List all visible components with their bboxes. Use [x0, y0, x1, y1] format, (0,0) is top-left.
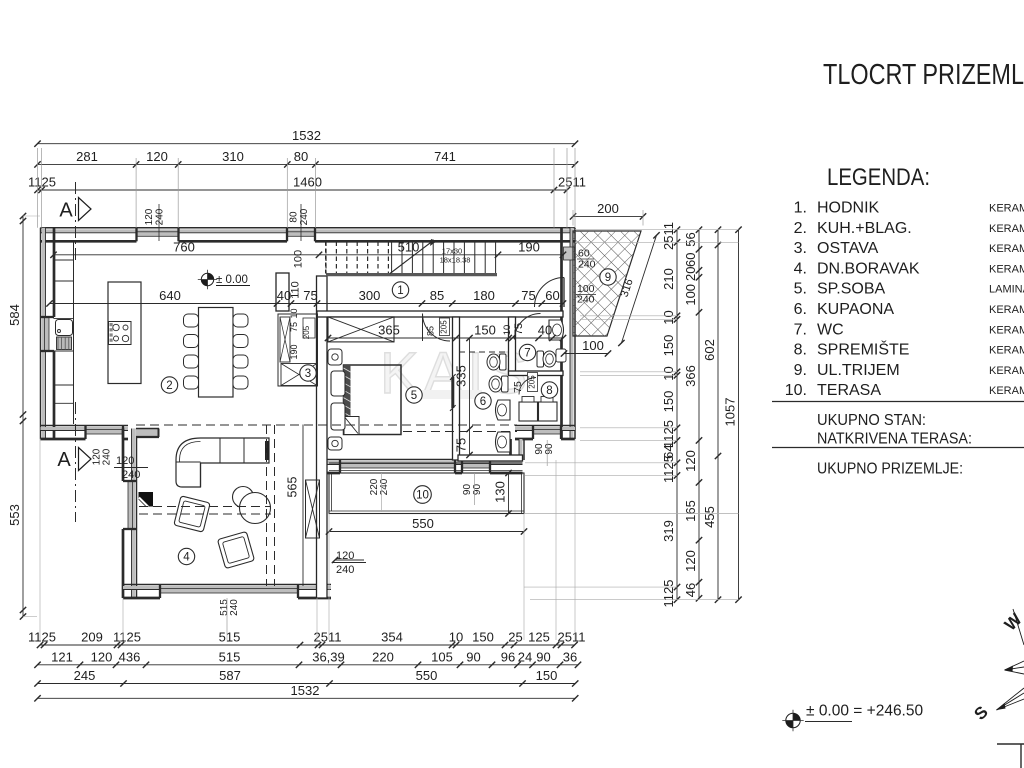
svg-text:354: 354 [381, 630, 403, 645]
svg-text:220: 220 [372, 649, 394, 664]
svg-text:310: 310 [222, 149, 244, 164]
svg-text:25: 25 [508, 630, 522, 645]
svg-text:KERAMI: KERAMI [989, 263, 1024, 275]
svg-text:1460: 1460 [293, 175, 322, 190]
svg-text:587: 587 [219, 668, 241, 683]
svg-text:205: 205 [528, 375, 537, 389]
svg-text:240: 240 [122, 469, 140, 481]
svg-text:17x30: 17x30 [442, 247, 462, 256]
svg-text:200: 200 [597, 201, 619, 216]
svg-text:105: 105 [431, 649, 453, 664]
svg-text:741: 741 [434, 149, 456, 164]
svg-text:550: 550 [412, 516, 434, 531]
svg-text:240: 240 [379, 478, 390, 495]
svg-text:515: 515 [219, 649, 241, 664]
svg-text:515: 515 [219, 630, 241, 645]
svg-text:46: 46 [683, 583, 698, 597]
svg-text:KERAMI: KERAMI [989, 385, 1024, 397]
svg-text:1125: 1125 [113, 630, 141, 645]
svg-text:281: 281 [76, 149, 98, 164]
svg-text:602: 602 [702, 339, 717, 361]
svg-text:100: 100 [683, 284, 698, 306]
svg-text:240: 240 [578, 259, 596, 271]
svg-text:150: 150 [472, 630, 494, 645]
svg-text:75: 75 [454, 438, 469, 452]
svg-text:240: 240 [229, 599, 240, 616]
svg-text:365: 365 [378, 323, 400, 338]
svg-text:1.: 1. [794, 200, 807, 217]
svg-text:300: 300 [359, 288, 381, 303]
svg-text:UKUPNO PRIZEMLJE:: UKUPNO PRIZEMLJE: [817, 461, 963, 478]
svg-text:1125: 1125 [28, 175, 56, 190]
svg-text:240: 240 [299, 208, 310, 225]
svg-text:190: 190 [518, 239, 540, 254]
svg-text:1125: 1125 [28, 630, 56, 645]
svg-text:240: 240 [102, 448, 113, 465]
svg-text:75: 75 [512, 381, 524, 393]
svg-text:WC: WC [817, 321, 844, 338]
svg-text:125: 125 [528, 630, 550, 645]
svg-text:85: 85 [430, 288, 444, 303]
svg-text:± 0.00: ± 0.00 [216, 274, 248, 286]
svg-text:1125: 1125 [661, 580, 676, 608]
svg-text:436: 436 [119, 649, 141, 664]
svg-text:240: 240 [336, 564, 354, 576]
svg-text:9.: 9. [794, 362, 807, 379]
svg-text:DN.BORAVAK: DN.BORAVAK [817, 260, 920, 277]
svg-text:90: 90 [536, 649, 550, 664]
svg-text:KERAMI: KERAMI [989, 243, 1024, 255]
svg-text:553: 553 [7, 504, 22, 526]
svg-text:KERAMI: KERAMI [989, 345, 1024, 357]
svg-text:75: 75 [289, 322, 299, 332]
svg-text:205: 205 [302, 325, 311, 339]
svg-text:85: 85 [426, 326, 436, 336]
svg-text:565: 565 [286, 477, 300, 498]
svg-text:120: 120 [146, 149, 168, 164]
svg-text:3: 3 [305, 368, 311, 380]
svg-text:110: 110 [290, 281, 302, 299]
svg-text:190: 190 [289, 344, 299, 359]
svg-text:60: 60 [683, 253, 698, 267]
svg-text:8.: 8. [794, 342, 807, 359]
svg-text:36: 36 [563, 649, 577, 664]
svg-text:150: 150 [474, 323, 496, 338]
svg-text:LEGENDA:: LEGENDA: [827, 164, 930, 191]
svg-text:180: 180 [473, 288, 495, 303]
svg-text:4.: 4. [794, 260, 807, 277]
svg-text:130: 130 [493, 481, 508, 503]
svg-text:205: 205 [440, 320, 449, 334]
svg-text:1125: 1125 [661, 455, 676, 483]
svg-text:2511: 2511 [558, 175, 586, 190]
svg-text:10: 10 [449, 630, 463, 645]
svg-text:56: 56 [683, 232, 698, 246]
svg-text:7: 7 [524, 348, 530, 360]
svg-text:1: 1 [397, 285, 403, 297]
svg-text:7.: 7. [794, 321, 807, 338]
svg-text:90: 90 [544, 443, 555, 455]
svg-text:HODNIK: HODNIK [817, 200, 880, 217]
svg-text:40: 40 [538, 323, 552, 338]
svg-text:UKUPNO STAN:: UKUPNO STAN: [817, 412, 926, 429]
svg-text:90: 90 [466, 649, 480, 664]
svg-text:18x18.38: 18x18.38 [440, 256, 471, 265]
svg-text:75: 75 [521, 288, 535, 303]
svg-text:366: 366 [683, 365, 698, 387]
svg-text:209: 209 [81, 630, 103, 645]
svg-text:100: 100 [582, 338, 604, 353]
svg-text:319: 319 [661, 520, 676, 542]
svg-text:OSTAVA: OSTAVA [817, 240, 879, 257]
svg-text:A: A [59, 200, 73, 222]
svg-text:75: 75 [513, 323, 525, 335]
svg-text:510: 510 [398, 239, 420, 254]
svg-text:210: 210 [661, 268, 676, 290]
svg-text:240: 240 [155, 208, 166, 225]
svg-text:120: 120 [683, 450, 698, 472]
svg-text:10.: 10. [785, 382, 807, 399]
svg-text:550: 550 [416, 668, 438, 683]
svg-text:455: 455 [702, 506, 717, 528]
svg-text:KERAMI: KERAMI [989, 365, 1024, 377]
svg-text:335: 335 [454, 365, 469, 387]
svg-text:165: 165 [683, 500, 698, 522]
svg-text:120: 120 [116, 455, 134, 467]
svg-text:10: 10 [661, 310, 676, 324]
svg-text:KERAMI: KERAMI [989, 324, 1024, 336]
svg-text:2.: 2. [794, 220, 807, 237]
svg-text:NATKRIVENA TERASA:: NATKRIVENA TERASA: [817, 431, 972, 448]
svg-text:80: 80 [289, 211, 300, 223]
svg-text:100: 100 [293, 250, 305, 268]
svg-text:36,39: 36,39 [312, 649, 345, 664]
svg-text:2: 2 [166, 380, 172, 392]
svg-text:KUPAONA: KUPAONA [817, 301, 894, 318]
svg-text:LAMINA: LAMINA [989, 284, 1024, 296]
svg-text:KERAMI: KERAMI [989, 223, 1024, 235]
svg-text:10: 10 [502, 325, 513, 336]
svg-text:2511: 2511 [558, 630, 586, 645]
svg-text:UL.TRIJEM: UL.TRIJEM [817, 362, 900, 379]
svg-text:24: 24 [518, 649, 532, 664]
svg-text:760: 760 [173, 239, 195, 254]
svg-text:10: 10 [661, 366, 676, 380]
svg-text:121: 121 [51, 649, 73, 664]
svg-text:5.: 5. [794, 281, 807, 298]
svg-text:10: 10 [289, 308, 299, 318]
svg-text:8: 8 [546, 385, 552, 397]
svg-text:584: 584 [7, 304, 22, 326]
svg-text:120: 120 [144, 208, 155, 225]
svg-text:4: 4 [183, 552, 190, 564]
svg-text:150: 150 [661, 335, 676, 357]
svg-text:75: 75 [303, 288, 317, 303]
svg-text:3.: 3. [794, 240, 807, 257]
svg-text:6: 6 [480, 396, 486, 408]
svg-text:60: 60 [545, 288, 559, 303]
svg-text:1532: 1532 [292, 128, 321, 143]
svg-text:1532: 1532 [291, 683, 320, 698]
svg-text:KERAMI: KERAMI [989, 304, 1024, 316]
svg-text:2511: 2511 [314, 630, 342, 645]
svg-text:5: 5 [411, 390, 417, 402]
svg-text:20: 20 [683, 267, 698, 281]
svg-text:96: 96 [501, 649, 515, 664]
svg-text:SPREMIŠTE: SPREMIŠTE [817, 340, 909, 359]
svg-text:245: 245 [74, 668, 96, 683]
svg-text:150: 150 [536, 668, 558, 683]
svg-text:KERAMI: KERAMI [989, 203, 1024, 215]
svg-text:TERASA: TERASA [817, 382, 881, 399]
svg-text:2511: 2511 [661, 222, 676, 250]
svg-text:120: 120 [91, 649, 113, 664]
svg-text:120: 120 [683, 550, 698, 572]
svg-text:10: 10 [416, 490, 429, 502]
svg-text:80: 80 [294, 149, 308, 164]
svg-text:6.: 6. [794, 301, 807, 318]
svg-text:9: 9 [605, 272, 611, 284]
svg-text:A: A [57, 449, 71, 471]
svg-text:90: 90 [472, 484, 483, 496]
svg-text:640: 640 [159, 288, 181, 303]
svg-text:1125: 1125 [661, 420, 676, 448]
svg-text:240: 240 [577, 294, 595, 306]
svg-text:KUH.+BLAG.: KUH.+BLAG. [817, 220, 912, 237]
svg-text:1057: 1057 [723, 398, 738, 427]
svg-text:SP.SOBA: SP.SOBA [817, 281, 886, 298]
svg-text:± 0.00 = +246.50: ± 0.00 = +246.50 [806, 703, 923, 720]
svg-text:150: 150 [661, 391, 676, 413]
svg-text:TLOCRT PRIZEML: TLOCRT PRIZEML [823, 59, 1024, 91]
